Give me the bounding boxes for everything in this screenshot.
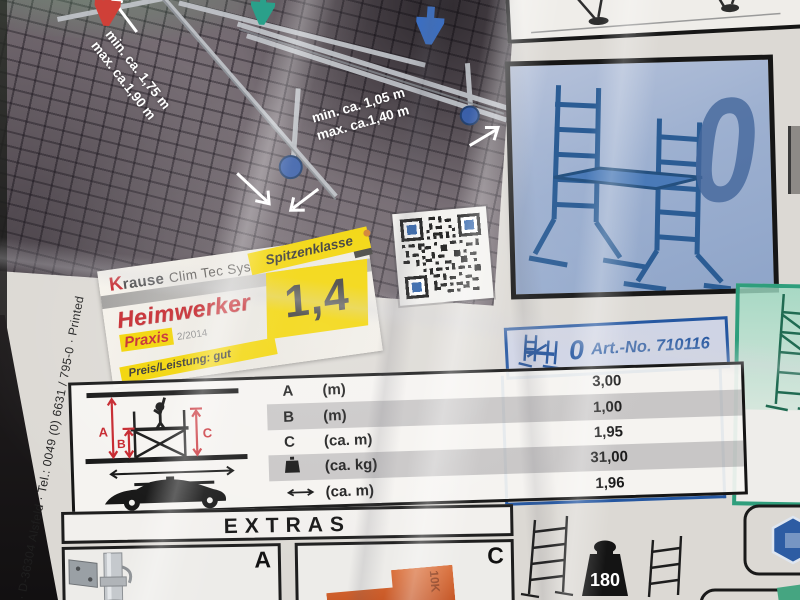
extras-section: EXTRAS A C 10K: [61, 504, 515, 600]
spec-rows: A (m) 3,00 B (m) 1,00 C (ca. m) 1,95 (ca…: [266, 365, 745, 507]
art-size-digit: 0: [568, 334, 585, 366]
double-arrow-icon: [285, 487, 315, 498]
panel-c-label: C: [487, 542, 504, 569]
red-arrow-icon: [93, 0, 121, 27]
article-number: Art.-No. 710116: [591, 334, 711, 359]
capacity-value: 180: [590, 570, 620, 590]
score-panel: 1,4: [266, 259, 368, 340]
caster-wheel-icon: [460, 106, 479, 125]
metal-jack-photo: [67, 550, 160, 600]
dimension-diagram: A B C: [71, 379, 270, 512]
orange-part-photo: 10K: [325, 565, 457, 600]
bottom-right-artwork: 180: [505, 500, 800, 600]
weight-icon: [285, 457, 301, 474]
diagram-label-a: A: [98, 424, 108, 439]
extras-title: EXTRAS: [61, 504, 513, 544]
top-illustration-panel: [505, 0, 800, 44]
diagram-label-c: C: [202, 425, 212, 440]
spec-table: A B C A (m) 3,00 B (m) 1,00: [68, 361, 748, 515]
tarp-edge: [0, 0, 7, 330]
teal-arrow-icon: [250, 0, 276, 26]
size-digit: 0: [688, 76, 758, 226]
product-illustration-panel: 0: [505, 55, 779, 300]
extras-panel-a: A: [62, 543, 282, 600]
magazine-issue: 2/2014: [176, 328, 208, 343]
caster-wheel-icon: [279, 155, 302, 178]
extras-panel-c: C 10K: [295, 539, 515, 600]
green-label-fragment: [777, 584, 800, 600]
package-photo: min. ca. 1,75 m max. ca.1,90 m min. ca. …: [0, 0, 800, 600]
qr-code: [392, 206, 494, 306]
edge-fragment: [788, 126, 800, 194]
panel-a-label: A: [254, 546, 271, 573]
diagram-label-b: B: [117, 437, 126, 451]
score-value: 1,4: [282, 262, 351, 335]
blue-arrow-icon: [415, 6, 446, 46]
scaffold-feet-drawing: [509, 0, 800, 38]
tall-scaffold-drawing: [764, 292, 800, 413]
part-marking: 10K: [427, 570, 443, 593]
